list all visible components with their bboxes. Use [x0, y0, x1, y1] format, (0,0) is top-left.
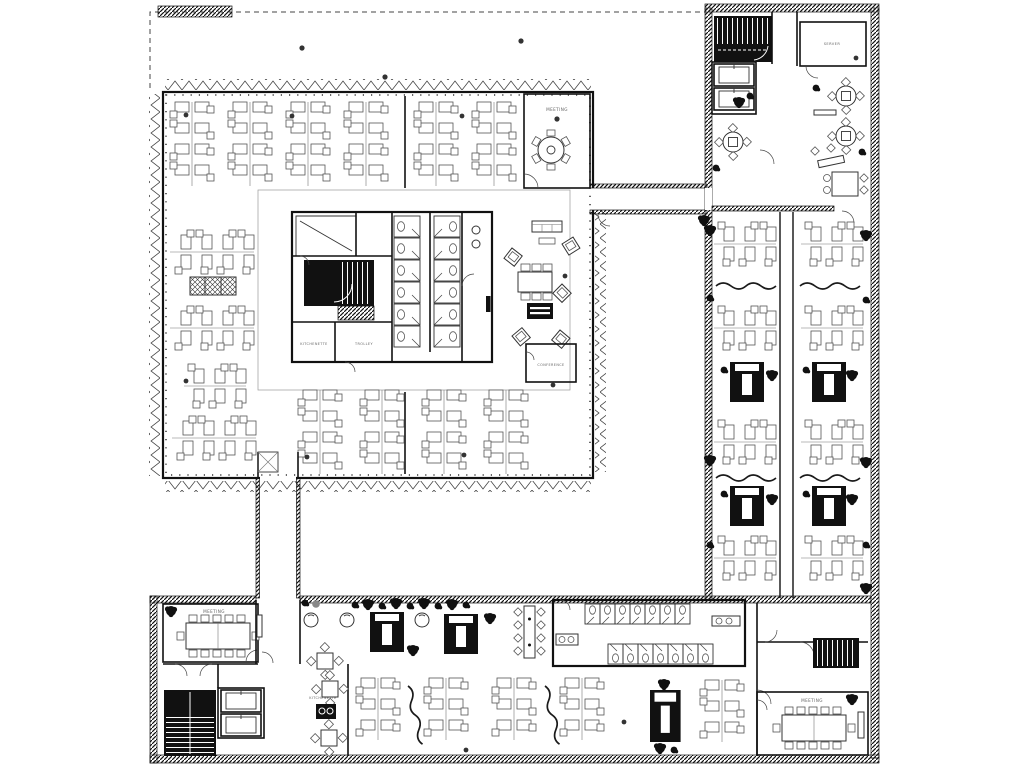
booth-with-plants — [650, 679, 681, 754]
planter-divider — [716, 283, 776, 289]
open-office-south — [298, 390, 528, 474]
open-office-west — [170, 230, 256, 460]
plant — [803, 367, 811, 374]
pouf — [304, 613, 318, 627]
bench — [257, 615, 262, 637]
conference-table — [177, 615, 259, 657]
door-arc — [842, 211, 854, 223]
conference-table — [773, 707, 855, 749]
stair-lower-run — [338, 306, 374, 320]
service-core: KITCHENETTE TROLLEY — [292, 212, 492, 372]
se-rooms: MEETING — [757, 630, 868, 755]
round-table — [532, 130, 571, 170]
stall-row-south — [608, 644, 713, 664]
stair-se — [813, 638, 859, 668]
room-label: SERVER — [824, 42, 841, 46]
bench — [858, 712, 864, 738]
plant — [721, 367, 729, 374]
appliance-counter — [316, 704, 336, 719]
door-arc — [345, 362, 355, 372]
meeting-room-se: MEETING — [757, 692, 868, 755]
collab-table — [190, 277, 236, 295]
server-room: SERVER — [800, 22, 866, 78]
door-arc — [806, 66, 818, 78]
plant — [484, 613, 496, 624]
plant — [733, 97, 745, 108]
door-arcs — [175, 664, 212, 676]
desk-cluster — [801, 420, 863, 464]
toilet-stalls — [394, 216, 460, 347]
desk-cluster — [170, 230, 254, 274]
cafe-area — [811, 78, 868, 196]
bench — [818, 155, 845, 167]
meeting-room-top: MEETING — [524, 94, 590, 188]
south-wing: MEETING KITC — [150, 596, 879, 763]
desk-cluster — [560, 678, 604, 740]
toilet-block — [553, 600, 745, 666]
booth-pod — [370, 612, 404, 652]
site-columns — [299, 38, 523, 79]
link-corridor-east — [590, 184, 707, 226]
desk-cluster — [801, 536, 863, 580]
desk-cluster — [360, 390, 404, 474]
plant — [846, 694, 858, 705]
floor-plan-drawing: MEETING — [0, 0, 1024, 768]
desk-cluster — [422, 390, 466, 474]
plant — [803, 491, 811, 498]
breakout-lounge: CONFERENCE — [504, 221, 580, 387]
main-office-block: MEETING — [149, 79, 606, 492]
open-office-north — [170, 102, 516, 186]
awning-marks-left — [149, 94, 160, 476]
room-label: TROLLEY — [354, 342, 373, 346]
desk-cluster — [184, 364, 246, 408]
plant — [859, 149, 867, 156]
awning-marks-top — [165, 79, 591, 90]
table — [312, 671, 349, 708]
core-divider-wall — [712, 206, 834, 211]
copier — [527, 303, 553, 319]
booth-pod — [730, 362, 764, 402]
store-room — [296, 216, 356, 256]
planter-divider — [405, 685, 425, 745]
door-arc — [262, 652, 273, 663]
plant — [165, 606, 177, 617]
kitchenette-sw: KITCHENETTE — [307, 643, 349, 757]
booth-pod — [730, 486, 764, 526]
table — [307, 643, 344, 680]
plant — [713, 165, 721, 172]
room-label: MEETING — [203, 609, 225, 614]
desk-cluster — [172, 416, 256, 460]
east-core: SERVER — [712, 12, 868, 196]
armchair — [562, 237, 580, 255]
booth-pod — [812, 362, 846, 402]
door-arcs — [765, 630, 814, 656]
desk-cluster — [801, 222, 863, 266]
desk-cluster — [344, 102, 388, 186]
elevator-bank-sw — [218, 688, 264, 738]
awning-marks-bottom — [165, 481, 591, 492]
table — [311, 720, 348, 757]
plant — [766, 370, 778, 381]
room-label: MEETING — [546, 107, 568, 112]
property-line — [150, 12, 706, 88]
pouf — [340, 613, 354, 627]
booth-pod — [444, 614, 478, 654]
desk-cluster — [472, 102, 516, 186]
booth-pod — [812, 486, 846, 526]
desk-cluster — [414, 102, 458, 186]
site-boundary — [150, 6, 706, 88]
boundary-hatch-bar — [158, 6, 232, 17]
high-table — [514, 606, 545, 658]
plant — [747, 93, 755, 100]
floor-plan-canvas: MEETING — [0, 0, 1024, 768]
lounge-strip — [302, 598, 546, 658]
room-label: KITCHENETTE — [300, 342, 327, 346]
plant — [766, 494, 778, 505]
desk-cluster — [714, 536, 776, 580]
dining-table — [518, 264, 552, 300]
exterior-wall — [705, 8, 712, 600]
meeting-room-sw: MEETING — [163, 604, 259, 662]
column — [622, 720, 627, 725]
elevator-bank — [712, 62, 756, 114]
armchair — [504, 248, 522, 266]
column — [854, 56, 859, 61]
desk-cluster — [700, 680, 744, 742]
stall-row-north — [585, 604, 690, 624]
plant — [846, 370, 858, 381]
planter-divider — [800, 475, 860, 481]
room-label: CONFERENCE — [537, 363, 564, 367]
column — [464, 748, 469, 753]
exterior-wall — [705, 4, 879, 12]
desk-cluster — [170, 306, 254, 350]
door-arc — [524, 174, 538, 188]
planter-divider — [542, 685, 562, 745]
plant — [813, 85, 821, 92]
link-corridor-south — [256, 452, 300, 598]
east-open-office — [698, 212, 872, 598]
exterior-wall — [150, 596, 157, 763]
coffee-table — [539, 238, 555, 244]
stair-sw — [164, 690, 216, 756]
planter-divider — [716, 475, 776, 481]
shelf — [814, 110, 836, 115]
desk-cluster — [170, 102, 214, 186]
desk-cluster — [714, 420, 776, 464]
desk-cluster — [801, 306, 863, 350]
sink-counter-west — [556, 634, 578, 645]
conference-room: CONFERENCE — [526, 344, 576, 387]
column — [563, 274, 568, 279]
room-label: MEETING — [801, 698, 823, 703]
cafe-big-table — [824, 172, 869, 196]
cafe-table — [828, 78, 865, 115]
exterior-wall — [871, 8, 879, 758]
plant — [721, 491, 729, 498]
stair-core — [304, 260, 374, 306]
door-arc — [760, 150, 774, 164]
desk-cluster — [424, 678, 468, 740]
plant — [846, 494, 858, 505]
stair-east — [714, 16, 772, 62]
desk-cluster — [298, 390, 342, 474]
exterior-wall — [150, 596, 256, 603]
awning-marks-right — [595, 210, 606, 472]
armchair — [553, 284, 571, 302]
sofa — [532, 221, 562, 232]
planter-divider — [800, 283, 860, 289]
armchair — [552, 330, 570, 348]
door-arc — [526, 352, 534, 360]
pouf — [415, 613, 429, 627]
desk-cluster — [484, 390, 528, 474]
door-arc — [757, 700, 767, 710]
sink-counter-east — [712, 616, 740, 626]
pouf — [312, 600, 320, 608]
desk-cluster — [228, 102, 272, 186]
desk-cluster — [492, 678, 536, 740]
desk-cluster — [356, 678, 400, 740]
round-table — [715, 124, 752, 161]
desk-cluster — [714, 222, 776, 266]
wash-room — [462, 226, 491, 312]
desk-cluster — [714, 306, 776, 350]
column — [551, 383, 556, 388]
plant — [407, 645, 419, 656]
exterior-wall — [150, 755, 879, 763]
column — [554, 116, 559, 121]
